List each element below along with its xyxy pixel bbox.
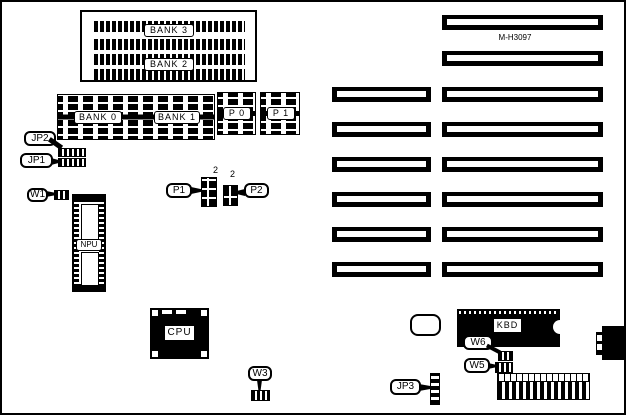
w3-jumper [251,390,270,401]
expansion-slot [332,157,431,172]
jp2-jumper [58,148,86,157]
jp1-label: JP1 [20,153,53,168]
jp1-jumper [58,158,86,167]
p1-jumper-label: P1 [166,183,192,198]
bank0-label: BANK 0 [74,111,122,124]
p1-pin2-label: 2 [213,166,218,175]
p0-label: P 0 [223,107,251,120]
power-connector [497,373,590,399]
expansion-slot [442,15,603,30]
expansion-slot [442,262,603,277]
p2-jumper-label: P2 [244,183,269,198]
motherboard-diagram: BANK 3 BANK 2 BANK 0 BANK 1 P 0 P 1 JP2 … [0,0,626,415]
parity-bank-p1: P 1 [260,92,300,135]
expansion-slot [442,87,603,102]
bank2-label: BANK 2 [144,58,194,71]
w1-label: W1 [27,188,48,202]
expansion-slot [332,122,431,137]
p1-header [201,177,217,207]
expansion-slot [332,262,431,277]
expansion-slot [442,157,603,172]
w3-label: W3 [248,366,272,381]
model-number: M-H3097 [487,34,543,42]
callout-pointer [191,187,201,194]
cpu-socket: CPU [150,308,209,359]
keyboard-connector-notch [597,335,602,341]
w1-jumper [54,190,69,200]
expansion-slot [332,227,431,242]
bank1-label: BANK 1 [154,111,200,124]
w6-jumper [498,351,513,361]
parity-bank-p0: P 0 [217,92,256,135]
expansion-slot [442,122,603,137]
expansion-slot [442,227,603,242]
cpu-label: CPU [165,326,194,340]
p2-header [223,185,238,206]
w5-jumper [495,362,513,373]
npu-label: NPU [76,239,102,251]
simm-slot [92,39,245,50]
expansion-slot [332,87,431,102]
jp3-header [430,373,440,405]
oscillator [410,314,441,336]
npu-socket: NPU [72,194,106,292]
p1-bank-label: P 1 [267,107,295,120]
expansion-slot [332,192,431,207]
dram-bank-block: BANK 0 BANK 1 [57,94,215,140]
jp3-label: JP3 [390,379,421,395]
kbd-label: KBD [494,319,521,332]
expansion-slot [442,192,603,207]
w5-label: W5 [464,358,490,373]
keyboard-connector-notch [597,344,602,350]
expansion-slot [442,51,603,66]
simm-memory-panel: BANK 3 BANK 2 [80,10,257,82]
bank3-label: BANK 3 [144,24,194,37]
p2-pin2-label: 2 [230,170,235,179]
